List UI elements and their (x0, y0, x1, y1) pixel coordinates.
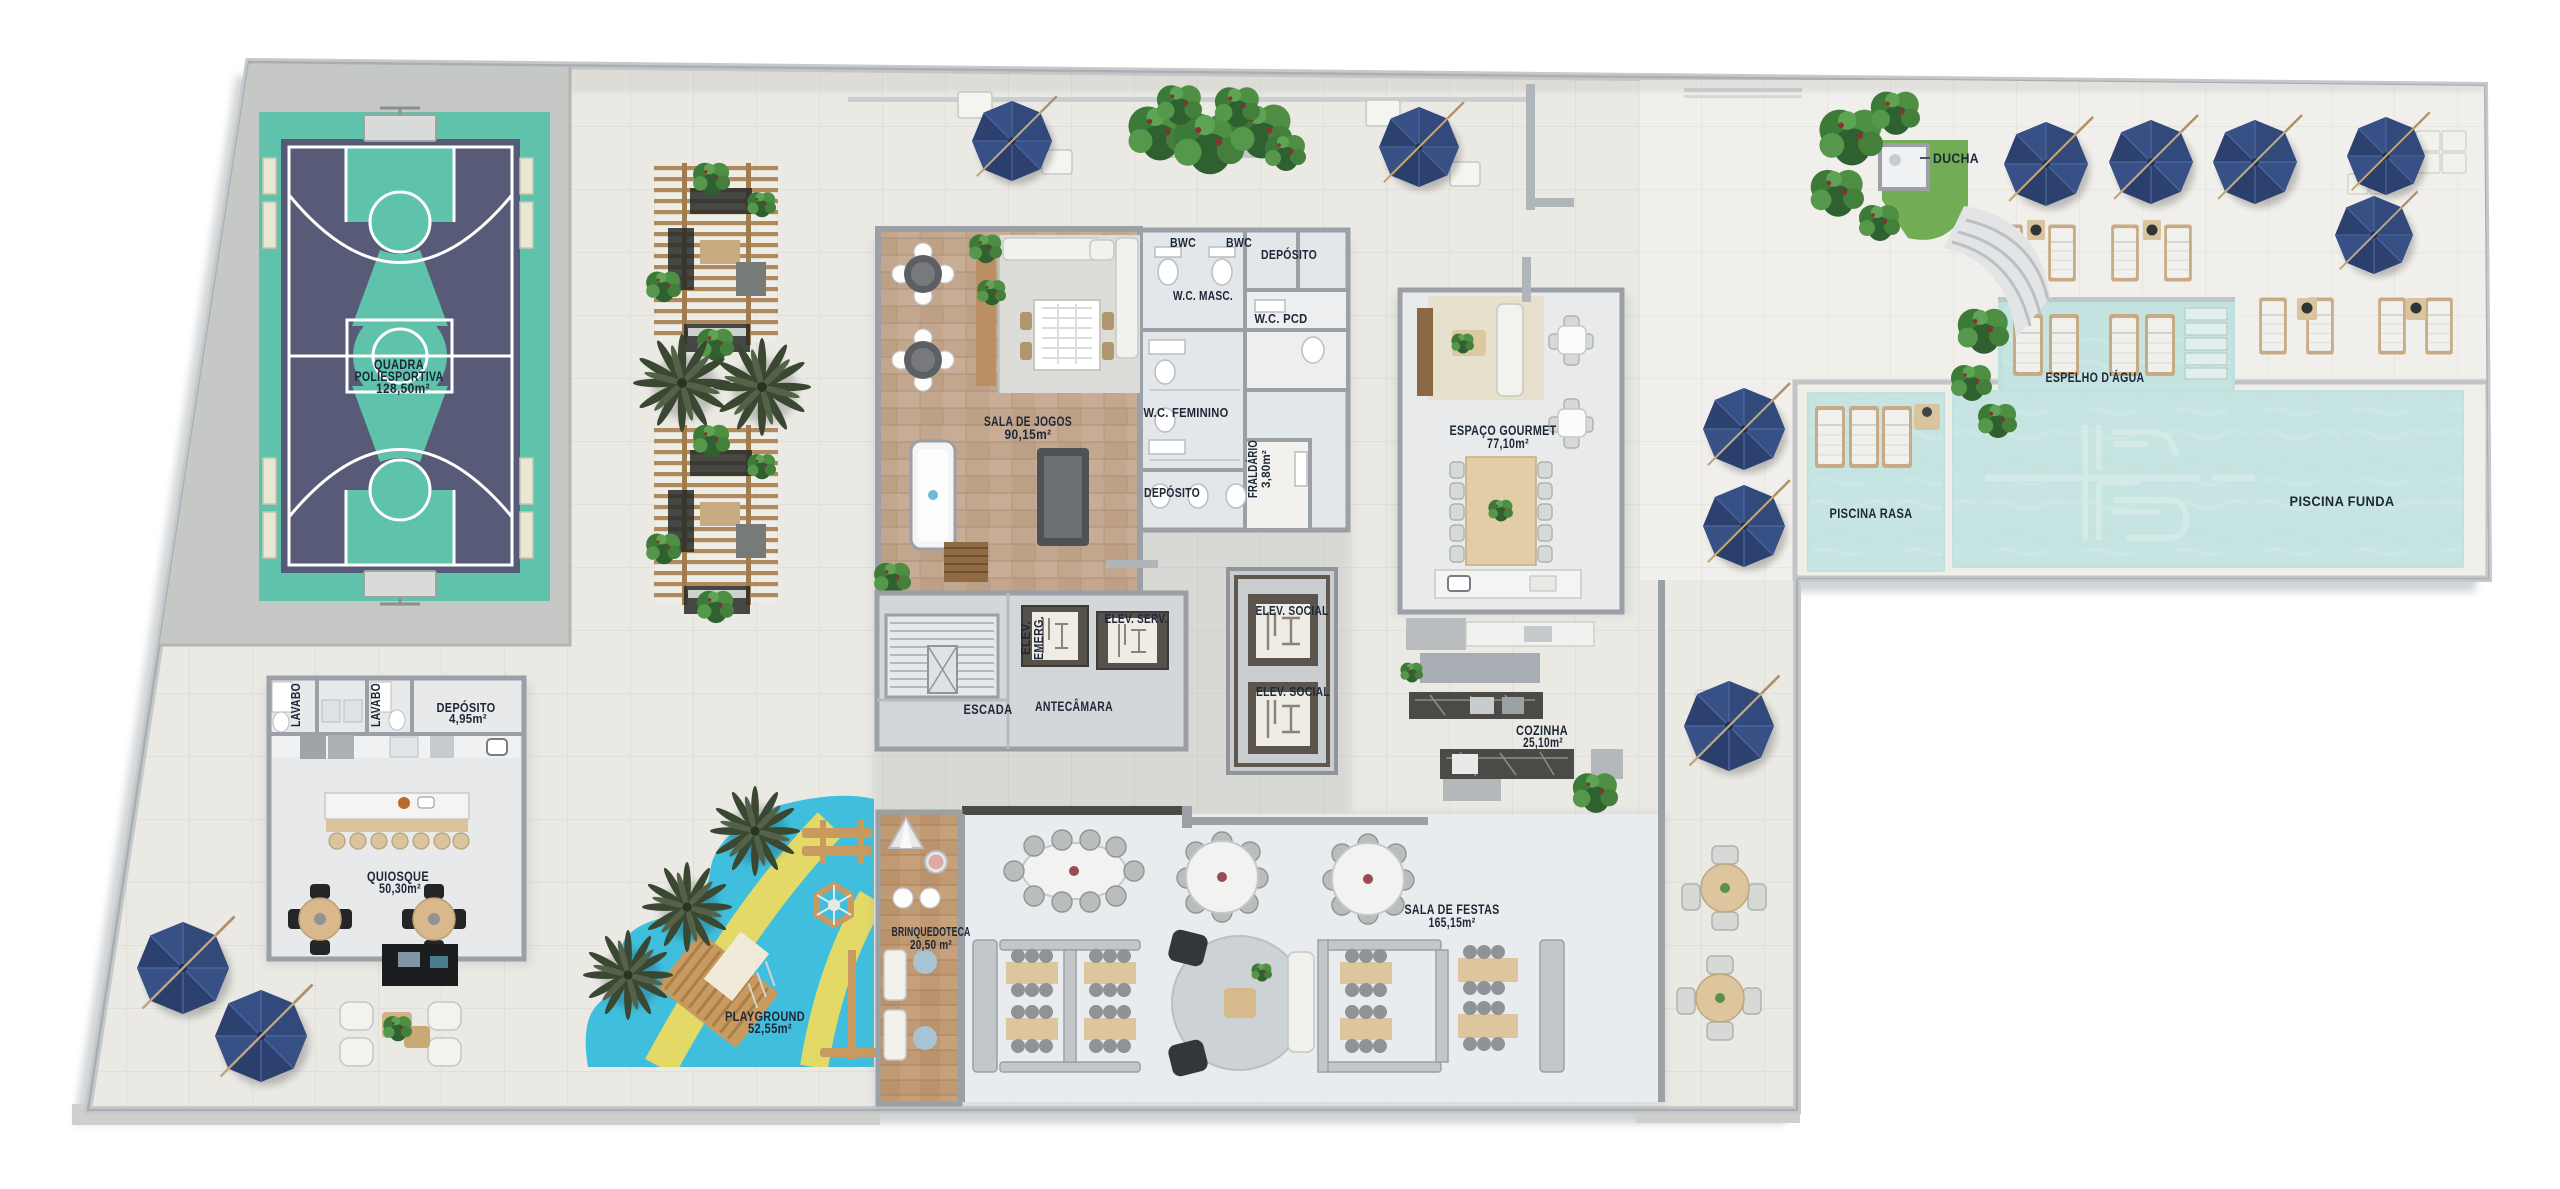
svg-text:BWC: BWC (1170, 236, 1196, 250)
svg-text:20,50 m²: 20,50 m² (910, 938, 952, 952)
svg-text:25,10m²: 25,10m² (1523, 735, 1563, 750)
svg-text:BRINQUEDOTECA: BRINQUEDOTECA (892, 925, 971, 939)
svg-text:PISCINA FUNDA: PISCINA FUNDA (2290, 494, 2395, 509)
svg-text:W.C. MASC.: W.C. MASC. (1173, 289, 1233, 303)
svg-text:EMERG.: EMERG. (1032, 616, 1046, 660)
svg-text:FRALDÁRIO: FRALDÁRIO (1245, 440, 1260, 498)
svg-text:W.C. PCD: W.C. PCD (1255, 312, 1308, 326)
svg-text:50,30m²: 50,30m² (379, 881, 421, 896)
svg-text:ESCADA: ESCADA (964, 702, 1013, 717)
svg-text:ELEV.: ELEV. (1019, 621, 1033, 655)
svg-text:W.C. FEMININO: W.C. FEMININO (1144, 406, 1229, 420)
svg-text:LAVABO: LAVABO (369, 683, 383, 727)
svg-text:DEPÓSITO: DEPÓSITO (1261, 247, 1317, 262)
svg-text:52,55m²: 52,55m² (748, 1021, 792, 1036)
svg-text:ELEV. SOCIAL: ELEV. SOCIAL (1256, 604, 1329, 618)
svg-text:165,15m²: 165,15m² (1429, 915, 1476, 930)
svg-text:ANTECÂMARA: ANTECÂMARA (1035, 699, 1113, 714)
svg-text:3,80m²: 3,80m² (1261, 450, 1273, 488)
svg-text:77,10m²: 77,10m² (1487, 436, 1529, 451)
svg-text:DEPÓSITO: DEPÓSITO (1144, 485, 1200, 500)
svg-text:ELEV. SOCIAL: ELEV. SOCIAL (1256, 685, 1330, 699)
svg-text:128,50m²: 128,50m² (376, 381, 430, 396)
svg-text:BWC: BWC (1226, 236, 1252, 250)
svg-text:PISCINA RASA: PISCINA RASA (1830, 506, 1913, 521)
svg-text:90,15m²: 90,15m² (1005, 427, 1052, 442)
svg-text:LAVABO: LAVABO (289, 683, 303, 727)
svg-text:DUCHA: DUCHA (1933, 151, 1979, 166)
svg-text:4,95m²: 4,95m² (449, 712, 487, 726)
svg-text:ESPELHO D'ÁGUA: ESPELHO D'ÁGUA (2046, 370, 2145, 385)
svg-text:ELEV. SERV.: ELEV. SERV. (1105, 612, 1168, 626)
